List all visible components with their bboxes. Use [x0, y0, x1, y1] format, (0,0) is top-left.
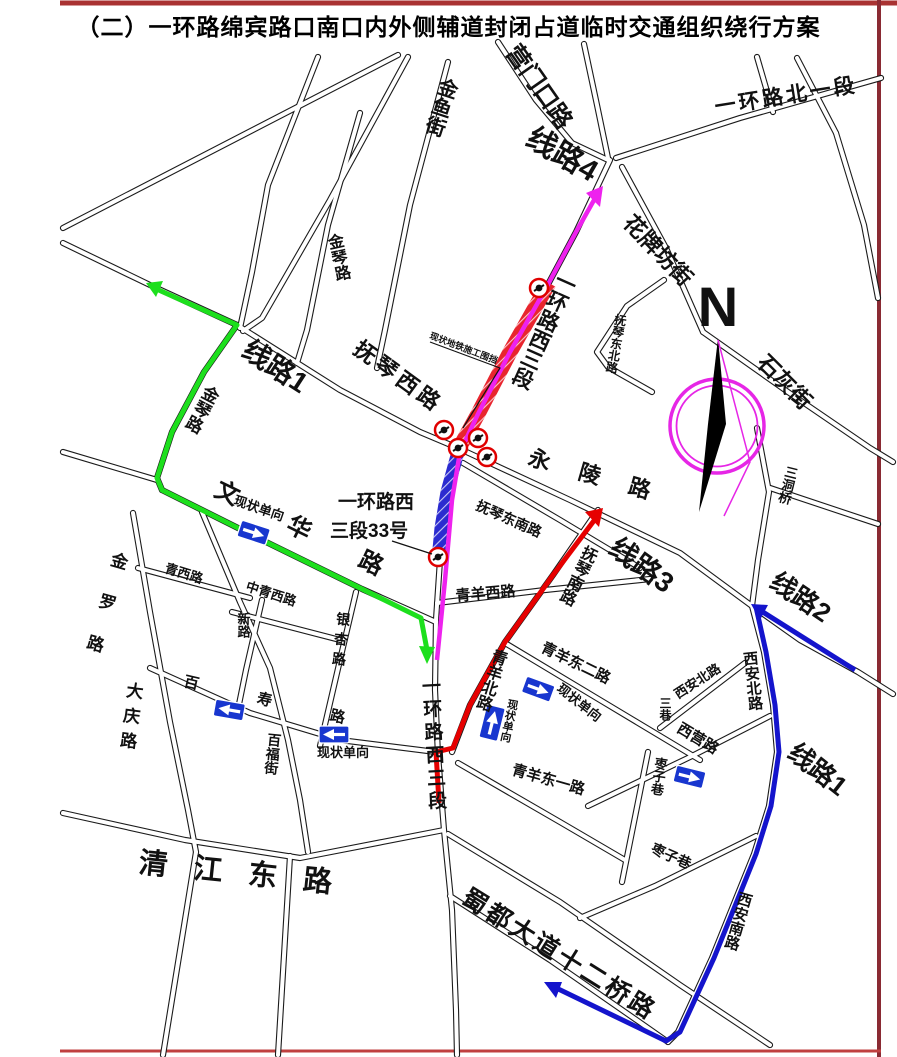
road-label-sanxiang: 三巷 [658, 697, 672, 722]
address-label-line1: 一环路西 [338, 490, 414, 513]
traffic-detour-map-page: （二）一环路绵宾路口南口内外侧辅道封闭占道临时交通组织绕行方案 [0, 0, 897, 1057]
construction-note: 现状地铁施工围挡 [428, 330, 499, 366]
road-label-qingyang-xi-lu: 青羊西路 [455, 582, 517, 605]
one-way-note: 现状单向 [317, 745, 369, 760]
address-leader-line [392, 541, 432, 554]
road-label-zhongqingxi-lu: 中青西路 [244, 579, 299, 610]
closure-marker-icon [429, 548, 447, 566]
compass-needle-icon [699, 338, 726, 512]
road-label-qingyang-bei-lu: 青羊北路 [472, 645, 510, 714]
road-label-daqing-lu: 大庆路 [115, 680, 144, 758]
road-label-jinyu-jie: 金鱼街 [420, 73, 462, 139]
compass-n-letter: N [698, 275, 738, 338]
road-label-huapaifang-jie: 花牌坊街 [618, 210, 697, 291]
road-label-xin-lu: 新路 [236, 611, 251, 638]
road-label-zaozi-xiang-v: 枣子巷 [648, 755, 669, 798]
road-label-sandongqiao: 三洞桥 [775, 464, 799, 507]
road-label-zaozi-xiang: 枣子巷 [648, 840, 695, 873]
road-label-jinluo-lu: 金罗路 [75, 548, 131, 679]
road-label-shihui-jie: 石灰街 [752, 349, 817, 414]
road-label-fuqin-dongbei-lu: 抚琴东北路 [604, 311, 629, 374]
closure-marker-icon [478, 448, 496, 466]
closure-marker-icon [449, 439, 467, 457]
closure-marker-icon [435, 421, 453, 439]
road-label-yongling-lu: 永陵路 [526, 445, 683, 512]
closure-marker-icon [469, 429, 487, 447]
road-label-yihuanlu-xisanduan-south: 一环路西三段 [419, 675, 448, 814]
road-label-jinqin-lu-upper: 金琴路 [323, 231, 353, 284]
road-label-xian-bei-lu: 西安北路 [741, 650, 764, 712]
route-label-xianlu1-blue: 线路1 [782, 737, 853, 802]
road-label-qingyang-dong-er-lu: 青羊东二路 [538, 638, 614, 687]
address-label-line2: 三段33号 [330, 519, 408, 542]
one-way-right-sign-icon [521, 676, 555, 702]
road-label-yinxing-lu: 银杏路 [330, 610, 352, 672]
one-way-left-sign-icon [319, 726, 349, 743]
road-label-yingmenkou-lu: 营门口路 [500, 39, 579, 135]
route-label-xianlu3: 线路3 [603, 532, 679, 599]
detour-map-canvas: N 营门口路 金鱼街 线路4 一环路北一段 花牌坊街 石灰街 三洞桥 抚琴东北路… [0, 0, 897, 1057]
closure-marker-icon [530, 279, 548, 297]
compass-north-indicator: N [670, 275, 764, 516]
one-way-right-sign-icon [673, 765, 706, 789]
road-label-fuqin-nan-lu: 抚琴南路 [555, 541, 602, 609]
road-label-yihuanlu-beiyiduan: 一环路北一段 [713, 73, 859, 119]
road-label-qingyang-dong-yi-lu: 青羊东一路 [510, 761, 588, 799]
road-label-baifu-jie: 百福街 [263, 732, 283, 777]
